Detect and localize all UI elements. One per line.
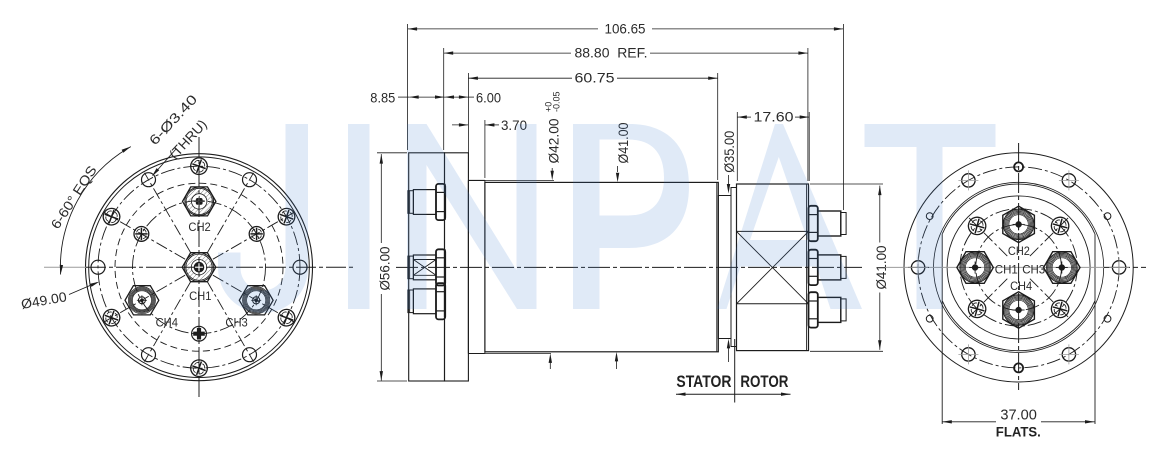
svg-text:CH1: CH1: [995, 263, 1018, 277]
svg-text:Ø49.00: Ø49.00: [20, 289, 68, 312]
svg-text:CH3: CH3: [1022, 263, 1045, 277]
svg-text:STATOR: STATOR: [676, 372, 731, 391]
svg-text:37.00: 37.00: [1000, 408, 1037, 424]
svg-text:ROTOR: ROTOR: [740, 372, 788, 391]
svg-text:88.80 REF.: 88.80 REF.: [575, 45, 648, 61]
svg-text:Ø41.00: Ø41.00: [615, 122, 631, 163]
svg-text:Ø42.00: Ø42.00: [546, 118, 562, 163]
svg-text:-0.05: -0.05: [552, 91, 562, 112]
svg-text:Ø56.00: Ø56.00: [376, 246, 392, 290]
svg-text:106.65: 106.65: [605, 20, 646, 36]
svg-text:CH3: CH3: [225, 315, 248, 329]
svg-text:CH1: CH1: [189, 289, 212, 303]
svg-text:CH4: CH4: [1010, 279, 1032, 293]
svg-text:60.75: 60.75: [575, 70, 615, 86]
svg-text:17.60: 17.60: [754, 109, 794, 125]
svg-text:6-60° EQS: 6-60° EQS: [48, 163, 100, 232]
svg-text:8.85: 8.85: [370, 89, 395, 105]
svg-text:FLATS.: FLATS.: [996, 424, 1041, 440]
svg-text:CH4: CH4: [156, 315, 179, 329]
svg-text:Ø35.00: Ø35.00: [721, 131, 737, 173]
svg-text:CH2: CH2: [1008, 244, 1030, 258]
svg-text:CH2: CH2: [188, 220, 211, 234]
svg-text:3.70: 3.70: [501, 117, 527, 133]
svg-text:6.00: 6.00: [476, 89, 501, 105]
